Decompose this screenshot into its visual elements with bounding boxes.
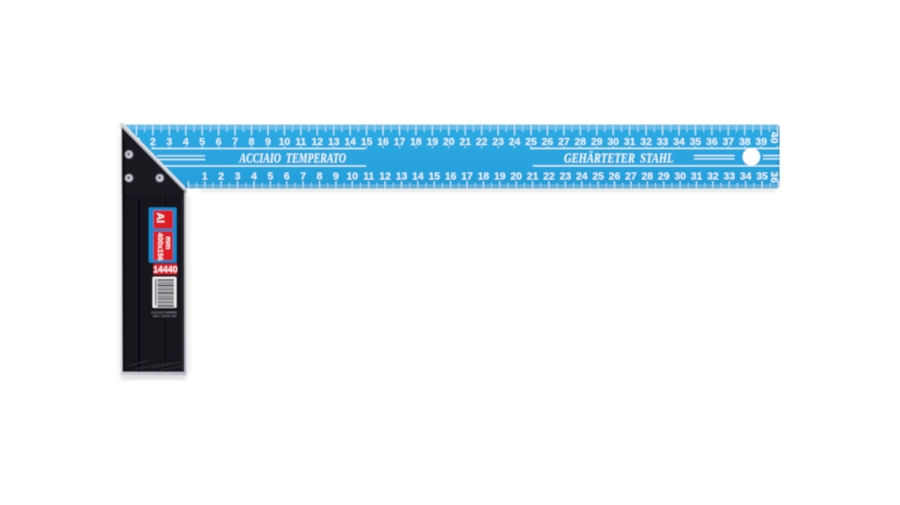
svg-text:3: 3 [235, 172, 241, 183]
svg-text:21: 21 [527, 172, 539, 183]
svg-text:12: 12 [311, 137, 323, 148]
svg-text:10: 10 [347, 172, 359, 183]
svg-text:5: 5 [199, 137, 205, 148]
svg-text:3: 3 [166, 137, 172, 148]
svg-text:14: 14 [344, 137, 356, 148]
svg-text:11: 11 [295, 137, 306, 148]
svg-text:11: 11 [363, 172, 374, 183]
svg-text:31: 31 [691, 172, 703, 183]
svg-text:30: 30 [607, 137, 619, 148]
svg-text:8: 8 [249, 137, 255, 148]
svg-text:27: 27 [625, 172, 637, 183]
svg-text:2: 2 [218, 172, 224, 183]
svg-text:7: 7 [232, 137, 238, 148]
svg-text:39: 39 [755, 137, 767, 148]
svg-text:18: 18 [410, 137, 422, 148]
svg-text:23: 23 [492, 137, 504, 148]
svg-text:28: 28 [642, 172, 654, 183]
svg-text:40: 40 [768, 132, 779, 144]
svg-text:17: 17 [461, 172, 473, 183]
svg-text:15: 15 [428, 172, 440, 183]
svg-text:10: 10 [279, 137, 291, 148]
svg-text:35: 35 [756, 172, 768, 183]
svg-text:14: 14 [412, 172, 424, 183]
svg-text:19: 19 [494, 172, 506, 183]
svg-text:34: 34 [740, 172, 752, 183]
svg-text:20: 20 [443, 137, 455, 148]
svg-text:2: 2 [150, 137, 156, 148]
svg-text:32: 32 [640, 137, 652, 148]
svg-text:32: 32 [707, 172, 719, 183]
svg-text:16: 16 [445, 172, 457, 183]
svg-text:Al: Al [154, 213, 166, 224]
svg-text:21: 21 [459, 137, 471, 148]
svg-text:37: 37 [722, 137, 734, 148]
svg-text:36: 36 [706, 137, 718, 148]
svg-text:14440: 14440 [153, 264, 178, 274]
svg-text:13: 13 [396, 172, 408, 183]
svg-text:26: 26 [609, 172, 621, 183]
svg-text:29: 29 [591, 137, 603, 148]
svg-text:24: 24 [509, 137, 521, 148]
svg-text:33: 33 [723, 172, 735, 183]
svg-text:16: 16 [377, 137, 389, 148]
svg-text:17: 17 [394, 137, 406, 148]
svg-text:30: 30 [674, 172, 686, 183]
svg-text:mm: mm [164, 237, 173, 250]
svg-text:5: 5 [267, 172, 273, 183]
svg-text:9: 9 [265, 137, 271, 148]
svg-text:GEH. STAHL 400: GEH. STAHL 400 [153, 314, 177, 318]
svg-text:1: 1 [202, 172, 208, 183]
svg-text:22: 22 [476, 137, 488, 148]
svg-text:38: 38 [739, 137, 751, 148]
svg-text:26: 26 [542, 137, 554, 148]
svg-text:29: 29 [658, 172, 670, 183]
svg-text:34: 34 [673, 137, 685, 148]
svg-text:6: 6 [216, 137, 222, 148]
svg-text:4: 4 [251, 172, 257, 183]
svg-text:22: 22 [543, 172, 555, 183]
svg-text:8: 8 [317, 172, 323, 183]
svg-text:13: 13 [328, 137, 340, 148]
svg-text:4: 4 [183, 137, 189, 148]
svg-text:20: 20 [510, 172, 522, 183]
svg-text:23: 23 [560, 172, 572, 183]
svg-text:GEHÄRTETER STAHL: GEHÄRTETER STAHL [564, 150, 674, 165]
svg-text:33: 33 [657, 137, 669, 148]
svg-text:35: 35 [690, 137, 702, 148]
svg-text:31: 31 [624, 137, 636, 148]
svg-text:19: 19 [427, 137, 439, 148]
svg-text:6: 6 [284, 172, 290, 183]
svg-text:9: 9 [333, 172, 339, 183]
svg-text:25: 25 [592, 172, 604, 183]
svg-text:7: 7 [300, 172, 306, 183]
svg-text:ACCIAIO TEMPERATO: ACCIAIO TEMPERATO [239, 150, 346, 165]
svg-text:12: 12 [379, 172, 391, 183]
svg-text:36: 36 [768, 171, 779, 183]
svg-text:25: 25 [525, 137, 537, 148]
svg-text:27: 27 [558, 137, 570, 148]
svg-text:15: 15 [361, 137, 373, 148]
svg-text:24: 24 [576, 172, 588, 183]
svg-text:18: 18 [478, 172, 490, 183]
svg-text:28: 28 [575, 137, 587, 148]
